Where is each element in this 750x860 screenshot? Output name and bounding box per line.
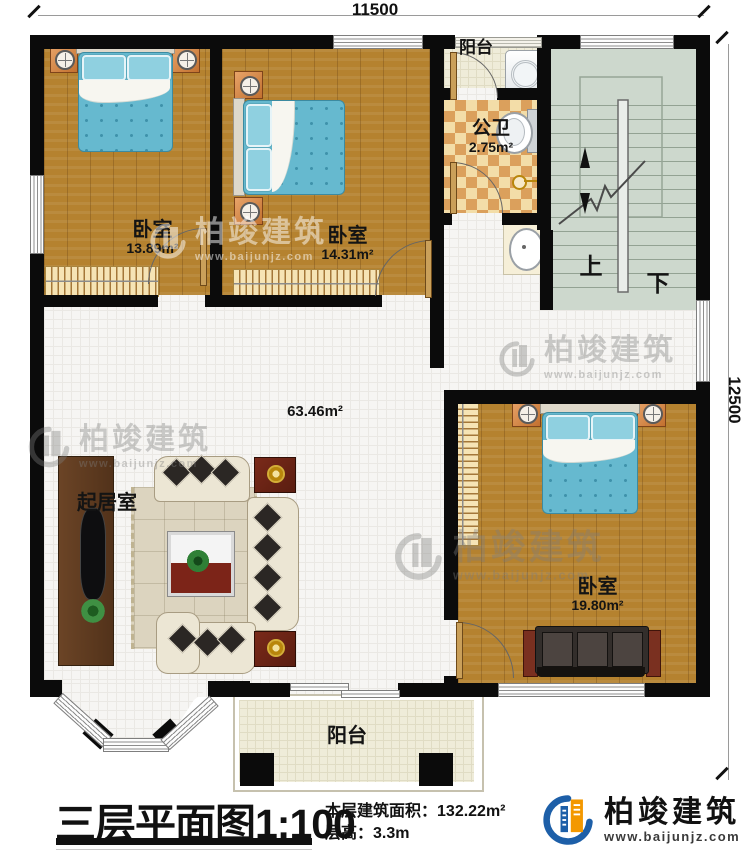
title-underline bbox=[56, 838, 312, 845]
sink-drain bbox=[522, 245, 526, 249]
room-area: 13.89m² bbox=[105, 241, 200, 256]
lamp-icon bbox=[240, 76, 260, 96]
dimension-tick bbox=[27, 5, 40, 18]
dresser-drawer bbox=[612, 632, 643, 667]
wall-bed1-bed2 bbox=[210, 49, 222, 295]
bedroom2-door-leaf bbox=[425, 240, 432, 298]
wall-bath-bottom-1 bbox=[444, 213, 452, 225]
wall-bed3-top bbox=[444, 390, 710, 404]
bed1-pillow bbox=[82, 55, 126, 81]
wall-top-1 bbox=[30, 35, 333, 49]
side-table-emblem bbox=[267, 639, 285, 657]
lamp-icon bbox=[643, 404, 663, 424]
room-name: 卧室 bbox=[105, 219, 200, 241]
wall-right-2 bbox=[696, 380, 710, 697]
stairs-down-label: 下 bbox=[644, 271, 672, 296]
dresser-base bbox=[537, 667, 645, 677]
bay-window-front bbox=[103, 738, 169, 752]
bathroom-door-leaf bbox=[450, 162, 457, 214]
dresser-drawer bbox=[577, 632, 608, 667]
brand-name: 柏竣建筑 bbox=[604, 796, 740, 829]
sink-basin bbox=[509, 228, 544, 271]
bed2-pillow bbox=[246, 148, 272, 191]
balcony-bottom-label: 阳台 bbox=[318, 725, 376, 747]
room-name: 卧室 bbox=[300, 225, 395, 247]
bed3-pillow bbox=[546, 415, 590, 441]
window-bedroom2-top bbox=[333, 35, 423, 49]
floor-info: 本层建筑面积：132.22m² 层高：3.3m bbox=[325, 801, 506, 845]
window-stairwell-top bbox=[580, 35, 674, 49]
room-area: 2.75m² bbox=[447, 140, 535, 155]
wall-bottom-3 bbox=[643, 683, 710, 697]
tv-plant bbox=[78, 596, 108, 626]
bay-corner-right bbox=[208, 681, 250, 697]
wall-bath-right bbox=[537, 35, 551, 230]
bedroom1-label: 卧室 13.89m² bbox=[105, 219, 200, 256]
wall-right-1 bbox=[696, 35, 710, 300]
brand-url: www.baijunjz.com bbox=[604, 829, 740, 844]
room-name: 卧室 bbox=[550, 576, 645, 598]
stairs-up-label: 上 bbox=[577, 254, 605, 279]
brand-logo: 柏竣建筑 www.baijunjz.com bbox=[540, 792, 740, 848]
room-area: 14.31m² bbox=[300, 247, 395, 262]
stair-symbols bbox=[551, 49, 696, 310]
floor-area-row: 本层建筑面积：132.22m² bbox=[325, 801, 506, 823]
brand-logo-icon bbox=[540, 792, 596, 848]
balcony-top-door-leaf bbox=[450, 52, 457, 100]
bedroom2-label: 卧室 14.31m² bbox=[300, 225, 395, 262]
bed3-pillow bbox=[591, 415, 635, 441]
living-room-label: 起居室 bbox=[73, 492, 141, 514]
bedroom3-label: 卧室 19.80m² bbox=[550, 576, 645, 613]
wall-left-1 bbox=[30, 35, 44, 175]
floor-plan-canvas: 卧室 13.89m² 卧室 14.31m² 卧室 19.80m² 公卫 2.75… bbox=[0, 0, 750, 860]
wall-hall-stub bbox=[430, 307, 444, 368]
bed2-pillow bbox=[246, 104, 272, 147]
dimension-tick bbox=[715, 767, 728, 780]
wall-bed3-left bbox=[444, 404, 458, 620]
tv-screen bbox=[80, 508, 106, 600]
towel-ring bbox=[512, 175, 527, 190]
balcony-post-left bbox=[240, 753, 274, 786]
side-table-emblem bbox=[267, 465, 285, 483]
dimension-tick bbox=[697, 5, 710, 18]
wall-bed2-right bbox=[430, 49, 444, 307]
bathroom-label: 公卫 2.75m² bbox=[447, 119, 535, 155]
sliding-door-panel-2 bbox=[341, 690, 400, 698]
floor-area-label: 本层建筑面积： bbox=[325, 803, 437, 820]
wall-bath-bottom-2 bbox=[502, 213, 537, 225]
window-bedroom3-bottom bbox=[498, 683, 645, 697]
bay-corner-left bbox=[30, 680, 62, 697]
title-underline-thin bbox=[56, 849, 312, 850]
lamp-icon bbox=[177, 50, 197, 70]
floor-area-value: 132.22m² bbox=[437, 803, 506, 820]
wall-stair-left bbox=[540, 230, 553, 310]
window-bedroom1-left bbox=[30, 175, 44, 254]
bedroom1-wardrobe bbox=[45, 266, 159, 297]
floor-height-value: 3.3m bbox=[373, 825, 409, 842]
lamp-icon bbox=[55, 50, 75, 70]
room-area: 19.80m² bbox=[550, 598, 645, 613]
nightstand bbox=[234, 197, 263, 225]
floor-height-row: 层高：3.3m bbox=[325, 823, 506, 845]
washing-machine-door bbox=[511, 60, 540, 89]
floor-height-label: 层高： bbox=[325, 825, 373, 842]
window-hall-right bbox=[696, 300, 710, 382]
balcony-post-right bbox=[419, 753, 453, 786]
table-plant bbox=[184, 547, 212, 575]
bedroom1-door-leaf bbox=[200, 228, 207, 286]
dresser-drawer bbox=[542, 632, 573, 667]
bedroom3-door-leaf bbox=[456, 622, 463, 679]
lamp-icon bbox=[518, 404, 538, 424]
dimension-top-value: 11500 bbox=[335, 0, 415, 20]
balcony-top-label: 阳台 bbox=[450, 39, 502, 58]
wall-balctop-bath-2 bbox=[497, 88, 537, 100]
bed1-pillow bbox=[127, 55, 171, 81]
wall-bedrooms-bottom-2 bbox=[205, 295, 382, 307]
dimension-tick bbox=[715, 31, 728, 44]
wall-bedrooms-bottom-1 bbox=[44, 295, 158, 307]
lamp-icon bbox=[240, 202, 260, 222]
room-name: 公卫 bbox=[447, 119, 535, 140]
nightstand bbox=[234, 71, 263, 99]
towel-bar bbox=[524, 180, 537, 182]
living-room-area: 63.46m² bbox=[280, 404, 350, 421]
wall-left-2 bbox=[30, 252, 44, 683]
dimension-right-value: 12500 bbox=[724, 365, 744, 435]
